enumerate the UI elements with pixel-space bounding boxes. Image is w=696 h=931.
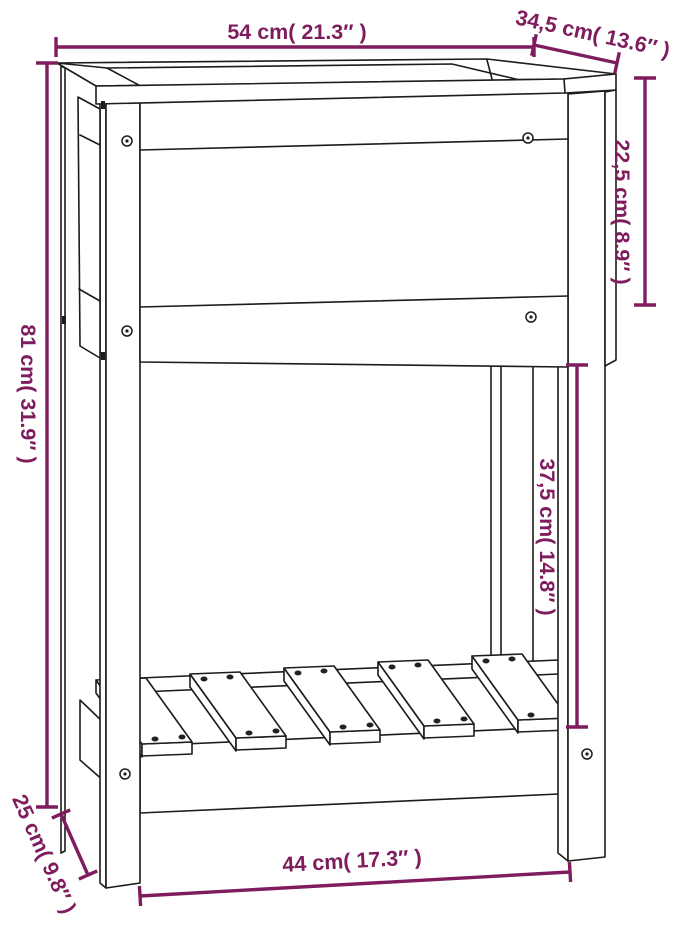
dimension-label: 34,5 cm( 13.6″ ) [513,5,672,62]
dimension-planter-height: 22,5 cm( 8.9″ ) [610,78,656,305]
diagram-canvas: 54 cm( 21.3″ ) 34,5 cm( 13.6″ ) 22,5 cm(… [0,0,696,931]
dimension-label: 37,5 cm( 14.8″ ) [535,458,559,615]
rim-joint [564,79,565,93]
dimension-shelf-height: 25 cm( 9.8″ ) [7,791,97,917]
screw-icon [523,133,533,143]
dimension-label: 22,5 cm( 8.9″ ) [610,139,634,284]
dimension-top-width: 54 cm( 21.3″ ) [56,20,534,57]
dimension-tick [569,862,570,882]
peg-icon [101,101,105,109]
dimension-label: 44 cm( 17.3″ ) [282,845,422,877]
front-right-leg [568,91,605,861]
dimension-label: 54 cm( 21.3″ ) [227,20,366,44]
dimension-label: 81 cm( 31.9″ ) [16,324,40,463]
dimension-tick [139,886,140,906]
planter-drawing [57,59,616,888]
dimension-total-height: 81 cm( 31.9″ ) [16,63,58,807]
back-left-leg [61,66,65,853]
screw-icon [122,136,132,146]
dimension-bottom-width: 44 cm( 17.3″ ) [139,845,570,906]
peg-icon [62,316,66,324]
screw-icon [526,312,536,322]
back-right-post [491,357,501,680]
screw-icon [122,326,132,336]
planter-box [78,90,616,367]
screw-icon [582,749,592,759]
dimension-line [140,872,570,896]
dimension-tick [615,52,620,73]
planter-dimension-diagram: 54 cm( 21.3″ ) 34,5 cm( 13.6″ ) 22,5 cm(… [0,0,696,931]
box-front-panel [140,90,568,367]
screw-icon [120,769,130,779]
peg-icon [101,352,105,360]
front-left-leg-side [100,101,106,888]
dimension-top-depth: 34,5 cm( 13.6″ ) [513,5,672,73]
